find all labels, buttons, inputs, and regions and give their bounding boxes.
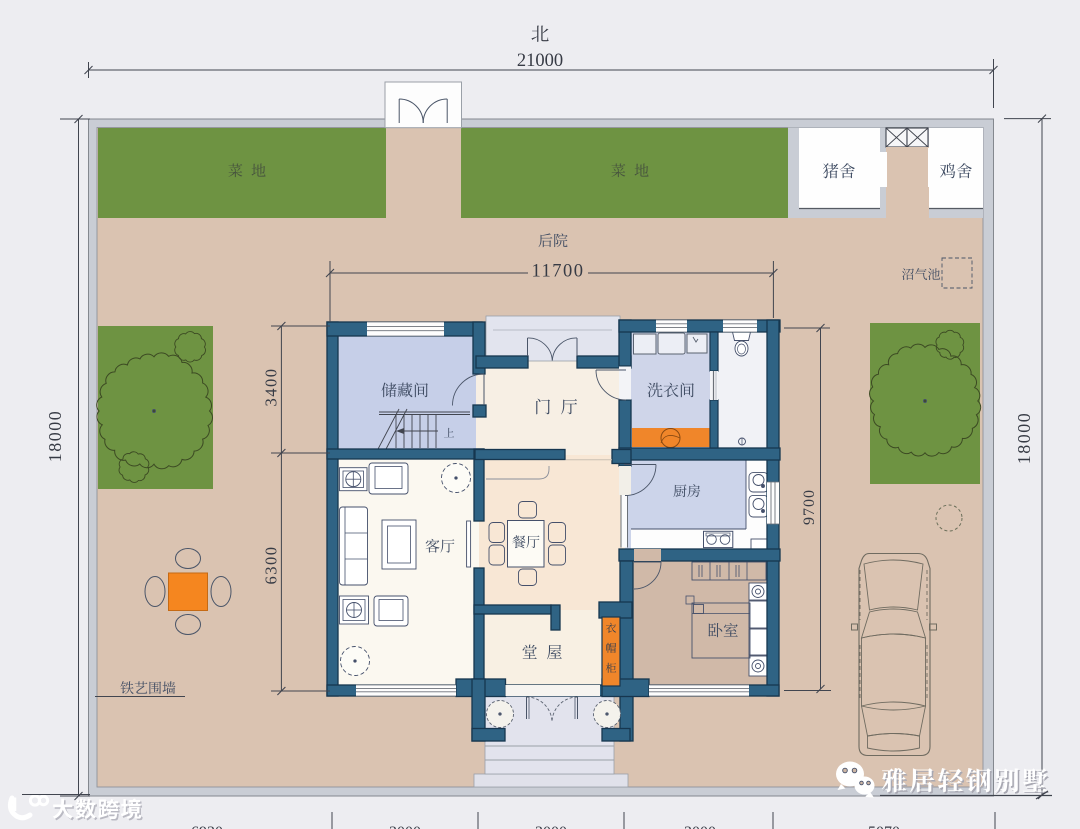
svg-text:5070: 5070 <box>868 824 900 829</box>
svg-text:18000: 18000 <box>1014 412 1034 465</box>
svg-text:6930: 6930 <box>191 824 223 829</box>
svg-text:21000: 21000 <box>517 51 563 71</box>
svg-text:3000: 3000 <box>684 824 716 829</box>
svg-text:3400: 3400 <box>262 368 281 407</box>
svg-text:3000: 3000 <box>535 824 567 829</box>
svg-text:9700: 9700 <box>801 489 818 525</box>
svg-text:18000: 18000 <box>45 410 65 463</box>
svg-text:11700: 11700 <box>531 262 584 282</box>
svg-text:3000: 3000 <box>389 824 421 829</box>
svg-text:6300: 6300 <box>262 546 281 585</box>
